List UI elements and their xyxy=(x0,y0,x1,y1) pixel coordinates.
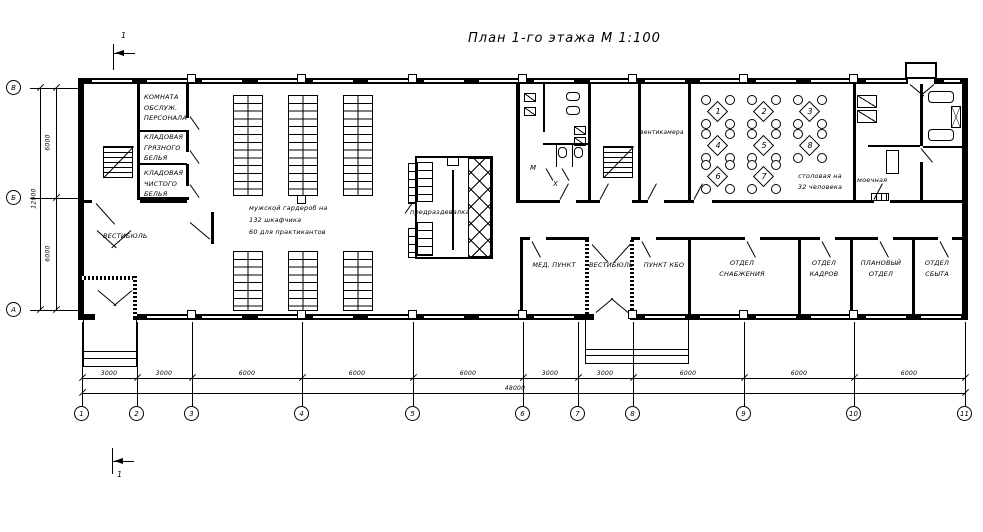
insulated-wall xyxy=(133,276,137,318)
wall xyxy=(211,212,214,244)
room-label-planning: ПЛАНОВЫЙ ОТДЕЛ xyxy=(857,258,905,279)
window xyxy=(368,79,408,83)
wall xyxy=(798,240,801,314)
window xyxy=(313,79,353,83)
chair xyxy=(725,119,735,129)
door-leaf xyxy=(648,183,657,199)
wall-opening xyxy=(745,237,760,240)
chair xyxy=(701,160,711,170)
chair xyxy=(701,184,711,194)
dining-table: 2 xyxy=(750,98,778,126)
door-leaf xyxy=(113,290,132,306)
shelf-unit xyxy=(417,162,433,202)
wall xyxy=(137,84,140,200)
table-number: 1 xyxy=(704,107,732,117)
wall xyxy=(962,78,968,320)
column-axis-bubble: 7 xyxy=(570,406,585,421)
dining-table: 7 xyxy=(750,163,778,191)
entrance-porch xyxy=(83,320,137,367)
wall xyxy=(688,240,691,314)
section-arrow-top-icon xyxy=(115,50,124,56)
plumbing-fixture xyxy=(566,92,580,101)
entrance-porch xyxy=(585,320,689,364)
dim-label: 6000 xyxy=(673,370,703,377)
dining-table: 1 xyxy=(704,98,732,126)
wall xyxy=(868,145,920,147)
window xyxy=(368,315,408,319)
section-mark-top-label: 1 xyxy=(121,31,126,40)
chair xyxy=(771,129,781,139)
door-leaf xyxy=(747,241,756,257)
room-label-hr: ОТДЕЛ КАДРОВ xyxy=(804,258,844,279)
door-leaf xyxy=(96,203,115,224)
chair xyxy=(817,153,827,163)
room-label-toilet-x: Х xyxy=(553,179,558,191)
wall xyxy=(923,146,962,148)
line xyxy=(40,88,41,310)
chair xyxy=(725,184,735,194)
wall-opening xyxy=(820,237,835,240)
wall xyxy=(520,240,523,314)
chair xyxy=(725,95,735,105)
column-axis-bubble: 5 xyxy=(405,406,420,421)
column-pier xyxy=(739,74,748,83)
window xyxy=(202,315,242,319)
door-leaf xyxy=(940,241,949,257)
column-axis-bubble: 2 xyxy=(129,406,144,421)
window xyxy=(92,79,132,83)
door-leaf xyxy=(532,241,541,257)
chair xyxy=(701,119,711,129)
chair xyxy=(793,95,803,105)
door-leaf xyxy=(596,298,613,313)
section-mark-bottom-label: 1 xyxy=(117,470,122,479)
wall xyxy=(853,84,856,200)
chair xyxy=(701,129,711,139)
chair xyxy=(747,160,757,170)
wall-opening xyxy=(648,200,664,203)
door-leaf xyxy=(880,241,889,257)
wall-opening xyxy=(600,200,632,203)
plumbing-fixture xyxy=(558,147,567,158)
wall-opening xyxy=(560,200,576,203)
door-leaf xyxy=(600,183,609,199)
shower-stalls-hatch xyxy=(468,158,491,257)
window xyxy=(424,315,464,319)
line xyxy=(586,349,688,350)
chair xyxy=(725,129,735,139)
room-label-vent-chamber: вентикамера xyxy=(640,128,684,138)
line xyxy=(84,351,136,352)
table-number: 8 xyxy=(796,141,824,151)
line xyxy=(572,145,573,167)
locker-bank xyxy=(288,251,318,311)
insulated-wall xyxy=(630,240,634,314)
locker-bank xyxy=(343,95,373,196)
table-number: 2 xyxy=(750,107,778,117)
wall xyxy=(543,84,545,132)
room-label-locker-room: мужской гардероб на 132 шкафчика 60 для … xyxy=(249,202,361,238)
window xyxy=(700,79,740,83)
line xyxy=(586,355,688,356)
column-axis-bubble: 1 xyxy=(74,406,89,421)
dim-label: 6000 xyxy=(453,370,483,377)
equipment-box xyxy=(886,150,899,174)
chair xyxy=(793,153,803,163)
door-leaf xyxy=(562,168,570,181)
door-leaf xyxy=(190,222,211,239)
wall xyxy=(920,162,923,200)
shelf-unit xyxy=(417,222,433,256)
column-pier xyxy=(408,310,417,319)
room-label-kbo: ПУНКТ КБО xyxy=(641,260,687,271)
window xyxy=(202,79,242,83)
chair xyxy=(817,95,827,105)
column-pier xyxy=(187,74,196,83)
door-leaf xyxy=(822,241,831,257)
wall xyxy=(850,240,853,314)
column-axis-bubble: 8 xyxy=(625,406,640,421)
room-label-clean-linen: КЛАДОВАЯ ЧИСТОГО БЕЛЬЯ xyxy=(144,168,192,200)
equipment-box xyxy=(447,157,459,166)
dining-table: 5 xyxy=(750,132,778,160)
equipment-box xyxy=(951,106,961,128)
wall-opening xyxy=(938,237,952,240)
column-pier xyxy=(518,74,527,83)
plumbing-fixture xyxy=(928,91,954,103)
room-label-vestibule-left: ВЕСТИБЮЛЬ xyxy=(103,231,148,242)
dim-label: 6000 xyxy=(784,370,814,377)
column-pier xyxy=(408,74,417,83)
dim-label: 3000 xyxy=(94,370,124,377)
window xyxy=(534,79,574,83)
locker-bank xyxy=(343,251,373,311)
dim-label: 6000 xyxy=(342,370,372,377)
dim-label: 6000 xyxy=(45,128,52,158)
insulated-wall xyxy=(80,276,134,280)
shelf-unit xyxy=(408,163,416,203)
wall xyxy=(516,84,520,200)
column-pier xyxy=(628,310,637,319)
dining-table: 6 xyxy=(704,163,732,191)
table-number: 4 xyxy=(704,141,732,151)
wall-opening xyxy=(640,237,656,240)
room-label-sales: ОТДЕЛ СБЫТА xyxy=(917,258,957,279)
window xyxy=(147,315,187,319)
line xyxy=(82,378,966,379)
column-pier xyxy=(739,310,748,319)
window xyxy=(479,315,519,319)
row-axis-bubble: А xyxy=(6,302,21,317)
chair xyxy=(771,119,781,129)
window xyxy=(645,79,685,83)
dining-table: 3 xyxy=(796,98,824,126)
locker-bank xyxy=(233,251,263,311)
room-label-washing: моечная xyxy=(857,175,887,186)
plumbing-fixture xyxy=(566,106,580,115)
window xyxy=(921,315,961,319)
column-axis-bubble: 4 xyxy=(294,406,309,421)
dim-label: 3000 xyxy=(590,370,620,377)
column-pier xyxy=(849,310,858,319)
window xyxy=(479,79,519,83)
line xyxy=(82,393,966,394)
door-leaf xyxy=(921,148,933,162)
window xyxy=(944,79,960,83)
wall xyxy=(638,84,641,200)
chair xyxy=(817,129,827,139)
equipment-box xyxy=(574,137,586,146)
plumbing-fixture xyxy=(928,129,954,141)
wall xyxy=(78,78,84,320)
equipment-box xyxy=(574,126,586,135)
window xyxy=(811,79,851,83)
dim-label: 6000 xyxy=(232,370,262,377)
door-leaf xyxy=(642,241,651,257)
wall xyxy=(516,200,962,203)
wall-opening xyxy=(694,200,712,203)
equipment-box xyxy=(524,93,536,102)
drawing-title: План 1-го этажа М 1:100 xyxy=(468,31,661,46)
chair xyxy=(747,95,757,105)
locker-bank xyxy=(233,95,263,196)
window xyxy=(258,79,298,83)
line xyxy=(556,145,557,167)
chair xyxy=(725,160,735,170)
locker-bank xyxy=(288,95,318,196)
window xyxy=(590,79,630,83)
chair xyxy=(793,129,803,139)
column-pier xyxy=(518,310,527,319)
column-axis-bubble: 10 xyxy=(846,406,861,421)
room-outline xyxy=(905,62,937,79)
column-axis-bubble: 3 xyxy=(184,406,199,421)
door-leaf xyxy=(560,183,569,199)
window xyxy=(313,315,353,319)
table-number: 7 xyxy=(750,172,778,182)
chair xyxy=(771,160,781,170)
chair xyxy=(771,95,781,105)
room-label-dining: столовая на 32 человека xyxy=(790,171,850,192)
dim-label: 3000 xyxy=(149,370,179,377)
column-axis-bubble: 11 xyxy=(957,406,972,421)
wall-opening xyxy=(878,237,893,240)
column-pier xyxy=(628,74,637,83)
dim-label: 3000 xyxy=(535,370,565,377)
dim-label: 6000 xyxy=(894,370,924,377)
window xyxy=(866,79,906,83)
window xyxy=(645,315,685,319)
section-arrow-bottom-icon xyxy=(114,458,123,464)
chair xyxy=(747,119,757,129)
room-label-med-point: МЕД. ПУНКТ xyxy=(528,260,580,271)
wall-opening xyxy=(530,237,546,240)
column-pier xyxy=(297,310,306,319)
room-label-supply: ОТДЕЛ СНАБЖЕНИЯ xyxy=(712,258,772,279)
table-number: 3 xyxy=(796,107,824,117)
dim-label: 6000 xyxy=(45,239,52,269)
column-axis-bubble: 9 xyxy=(736,406,751,421)
window xyxy=(534,315,574,319)
line xyxy=(113,44,114,70)
row-axis-bubble: Б xyxy=(6,190,21,205)
window xyxy=(811,315,851,319)
window xyxy=(866,315,906,319)
window xyxy=(424,79,464,83)
wall xyxy=(140,200,187,203)
dim-total-label: 12000 xyxy=(31,184,38,214)
plumbing-fixture xyxy=(574,147,583,158)
door-leaf xyxy=(611,298,628,313)
window xyxy=(147,79,187,83)
insulated-wall xyxy=(585,240,589,314)
chair xyxy=(793,119,803,129)
room-label-dirty-linen: КЛАДОВАЯ ГРЯЗНОГО БЕЛЬЯ xyxy=(144,132,192,164)
chair xyxy=(701,95,711,105)
dim-total-label: 48000 xyxy=(495,385,535,392)
table-number: 5 xyxy=(750,141,778,151)
column-axis-bubble: 6 xyxy=(515,406,530,421)
floor-plan-drawing: План 1-го этажа М 1:100 1 1 КОМНАТА ОБСЛ… xyxy=(0,0,983,532)
chair xyxy=(771,184,781,194)
equipment-box xyxy=(857,110,877,123)
chair xyxy=(817,119,827,129)
column-pier xyxy=(297,74,306,83)
wall-opening xyxy=(589,237,631,240)
room-label-vestibule-right: ВЕСТИБЮЛЬ xyxy=(589,260,631,271)
wall xyxy=(588,84,591,200)
shelf-unit xyxy=(408,228,416,258)
line xyxy=(56,88,57,310)
dining-table: 8 xyxy=(796,132,824,160)
window xyxy=(258,315,298,319)
equipment-box xyxy=(524,107,536,116)
chair xyxy=(747,184,757,194)
room-label-staff: КОМНАТА ОБСЛУЖ. ПЕРСОНАЛА xyxy=(144,92,192,124)
table-number: 6 xyxy=(704,172,732,182)
window xyxy=(756,79,796,83)
wall xyxy=(688,84,691,200)
line xyxy=(84,358,136,359)
chair xyxy=(747,129,757,139)
room-label-pre-changing: предраздевалка xyxy=(410,207,470,218)
row-axis-bubble: В xyxy=(6,80,21,95)
wall xyxy=(912,240,915,314)
equipment-box xyxy=(857,95,877,108)
column-pier xyxy=(187,310,196,319)
room-label-toilet-men: М xyxy=(530,163,536,175)
window xyxy=(756,315,796,319)
wall xyxy=(78,200,92,203)
column-pier xyxy=(849,74,858,83)
window xyxy=(700,315,740,319)
dining-table: 4 xyxy=(704,132,732,160)
